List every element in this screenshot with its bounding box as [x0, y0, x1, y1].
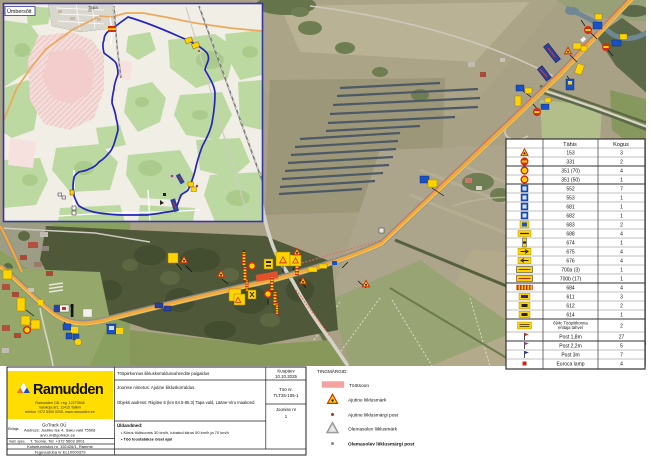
- svg-text:1: 1: [620, 312, 623, 318]
- svg-text:Post 2,2m: Post 2,2m: [559, 343, 582, 349]
- svg-text:Ajutine liiklusmärk: Ajutine liiklusmärk: [348, 398, 387, 404]
- svg-text:1: 1: [620, 276, 623, 282]
- svg-text:Olemasolev liiklusmärgi post: Olemasolev liiklusmärgi post: [348, 442, 415, 448]
- svg-text:Post 3m: Post 3m: [561, 352, 579, 358]
- svg-text:Töötsoon: Töötsoon: [349, 383, 369, 389]
- svg-text:ehitaja tahvel: ehitaja tahvel: [558, 325, 583, 330]
- svg-text:4: 4: [620, 231, 623, 237]
- svg-text:688: 688: [566, 231, 575, 237]
- svg-text:Ramudden: Ramudden: [33, 382, 103, 398]
- svg-text:552: 552: [566, 186, 575, 192]
- svg-text:612: 612: [566, 303, 575, 309]
- svg-text:1: 1: [620, 213, 623, 219]
- svg-text:153: 153: [566, 150, 575, 156]
- svg-text:681: 681: [566, 204, 575, 210]
- svg-text:• Kiirus töötsoonis 30 km/h,: • Kiirus töötsoonis 30 km/h, lubatud kii…: [121, 430, 229, 435]
- svg-text:351 (70): 351 (70): [561, 168, 580, 174]
- svg-text:700a (3): 700a (3): [561, 267, 580, 273]
- svg-text:Objekti aadress: Riigitee 5 (k: Objekti aadress: Riigitee 5 (km 84.5-85.…: [117, 400, 255, 405]
- svg-text:331: 331: [566, 159, 575, 165]
- svg-text:Tähis: Tähis: [563, 142, 577, 148]
- svg-text:351 (50): 351 (50): [561, 177, 580, 183]
- svg-text:7: 7: [620, 186, 623, 192]
- svg-text:1: 1: [620, 195, 623, 201]
- svg-text:3: 3: [620, 150, 623, 156]
- svg-text:2: 2: [620, 159, 623, 165]
- svg-text:7: 7: [620, 352, 623, 358]
- svg-text:Tegevusluba nr EL10000379: Tegevusluba nr EL10000379: [35, 450, 87, 455]
- svg-text:700b (17): 700b (17): [560, 276, 582, 282]
- svg-text:27: 27: [619, 334, 625, 340]
- svg-text:4: 4: [620, 258, 623, 264]
- svg-text:614: 614: [566, 312, 575, 318]
- svg-text:553: 553: [566, 195, 575, 201]
- svg-text:684: 684: [566, 285, 575, 291]
- svg-text:Kogus: Kogus: [613, 142, 629, 148]
- svg-text:4: 4: [620, 249, 623, 255]
- svg-text:676: 676: [566, 258, 575, 264]
- svg-text:Kuupäev: Kuupäev: [277, 369, 295, 374]
- svg-text:Ramudden OÜ, reg. 12273846: Ramudden OÜ, reg. 12273846: [35, 401, 84, 405]
- svg-text:1: 1: [620, 204, 623, 210]
- svg-text:Post 1,8m: Post 1,8m: [559, 334, 582, 340]
- svg-text:2: 2: [620, 323, 623, 329]
- svg-text:TLT25-105-1: TLT25-105-1: [273, 393, 299, 398]
- svg-text:Ajutine liiklusmärgi post: Ajutine liiklusmärgi post: [348, 413, 399, 419]
- svg-text:1: 1: [620, 240, 623, 246]
- svg-text:2: 2: [620, 222, 623, 228]
- svg-text:Kutsetunnistus nr. 192426/1, R: Kutsetunnistus nr. 192426/1, Ramme: [27, 444, 94, 449]
- svg-text:TINGMÄRGID:: TINGMÄRGID:: [317, 368, 348, 374]
- svg-text:10.10.2025: 10.10.2025: [275, 374, 298, 379]
- svg-text:Euroca lamp: Euroca lamp: [556, 361, 584, 367]
- svg-text:4: 4: [620, 361, 623, 367]
- svg-text:• Töö teostatakse öisel ajal: • Töö teostatakse öisel ajal: [121, 437, 172, 442]
- svg-text:Tööpiirkonnas liikluskorraldus: Tööpiirkonnas liikluskorraldusvahendite …: [117, 371, 209, 376]
- svg-text:5: 5: [620, 343, 623, 349]
- svg-text:1: 1: [620, 177, 623, 183]
- svg-text:1: 1: [620, 267, 623, 273]
- svg-text:Valukoja 8/1, 11415 Tallinn: Valukoja 8/1, 11415 Tallinn: [39, 406, 81, 410]
- svg-text:682: 682: [566, 213, 575, 219]
- svg-text:Tapa: Tapa: [88, 5, 98, 10]
- svg-text:674: 674: [566, 240, 575, 246]
- svg-text:2: 2: [620, 303, 623, 309]
- svg-text:arvo.m@gotrack.ee: arvo.m@gotrack.ee: [40, 433, 76, 438]
- svg-text:Ümbersõit: Ümbersõit: [7, 8, 32, 15]
- svg-text:4: 4: [620, 168, 623, 174]
- svg-text:Vast. spec.: Vast. spec.: [9, 440, 26, 444]
- svg-text:3: 3: [620, 294, 623, 300]
- svg-text:Joonise nr: Joonise nr: [276, 407, 297, 412]
- svg-text:611: 611: [567, 294, 575, 300]
- svg-text:telefon +372 5300 0200, www.ra: telefon +372 5300 0200, www.ramudden.ee: [25, 410, 95, 414]
- svg-text:Töö nr.: Töö nr.: [279, 387, 293, 392]
- svg-text:Ehitaja: Ehitaja: [8, 427, 18, 431]
- svg-text:4: 4: [620, 285, 623, 291]
- svg-text:675: 675: [566, 249, 575, 255]
- svg-text:T. Toome, Tel: +372 5603 3001: T. Toome, Tel: +372 5603 3001: [30, 439, 85, 444]
- svg-text:Joonise nimetus: Ajutine liikl: Joonise nimetus: Ajutine liikluskorraldu…: [117, 385, 196, 390]
- svg-text:683: 683: [566, 222, 575, 228]
- svg-text:Olemasolev liiklusmärk: Olemasolev liiklusmärk: [348, 427, 398, 433]
- svg-text:Üldandmed:: Üldandmed:: [117, 423, 143, 428]
